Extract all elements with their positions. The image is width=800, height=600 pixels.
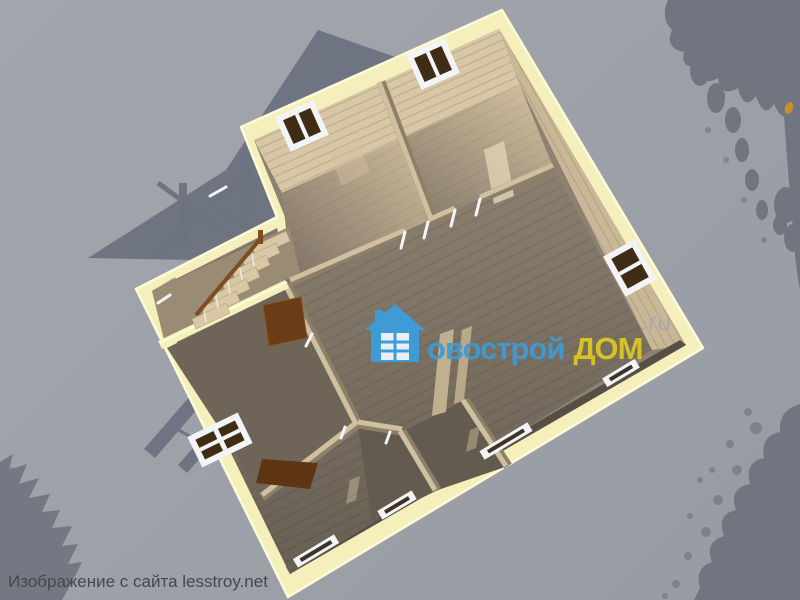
house-logo-icon bbox=[363, 302, 427, 363]
watermark-ru-suffix: .ru bbox=[640, 308, 672, 337]
image-source-caption: Изображение с сайта lesstroy.net bbox=[8, 572, 268, 592]
floor-plan-3d-render bbox=[0, 0, 800, 600]
tree-silhouette-bottom-right bbox=[662, 404, 800, 600]
open-door-annex bbox=[263, 297, 307, 346]
tree-silhouette-top-right bbox=[665, 0, 800, 290]
rendered-floor-plan-image: овострой ДОМ .ru Изображение с сайта les… bbox=[0, 0, 800, 600]
stair-newel-post bbox=[258, 230, 263, 244]
